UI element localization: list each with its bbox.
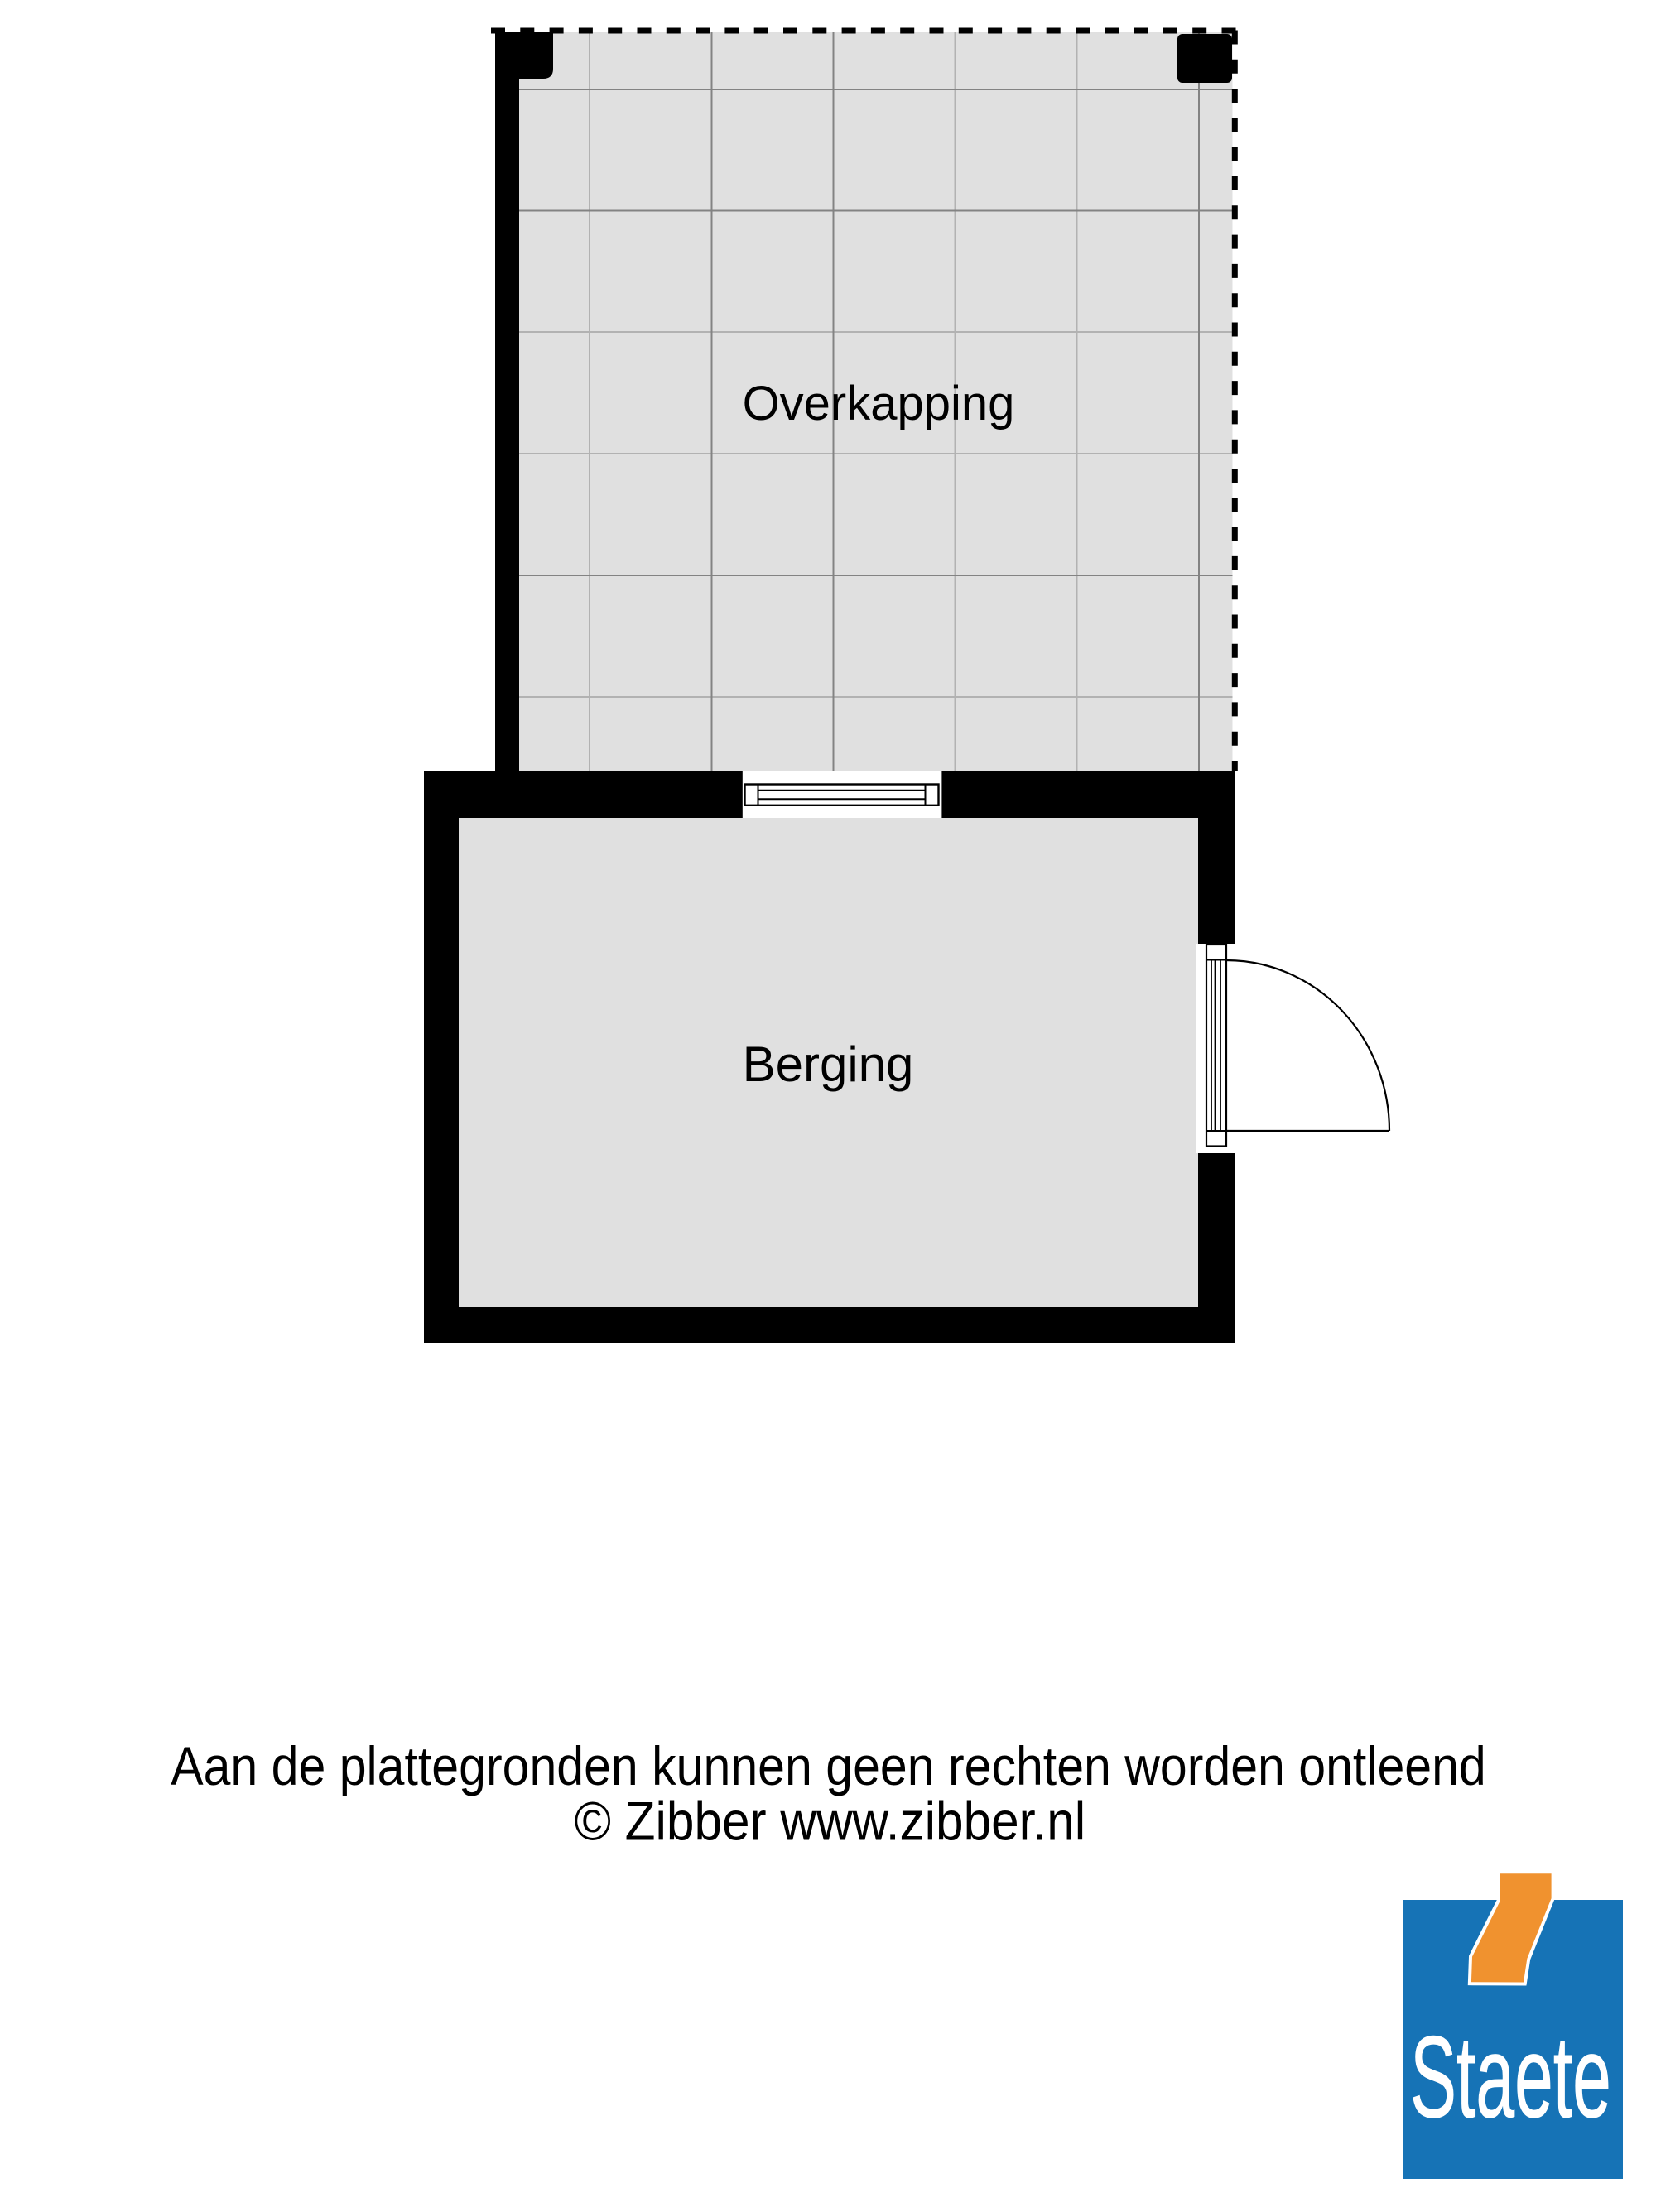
svg-text:Berging: Berging <box>743 1036 914 1092</box>
svg-text:Aan de plattegronden kunnen ge: Aan de plattegronden kunnen geen rechten… <box>171 1736 1486 1797</box>
svg-text:Overkapping: Overkapping <box>743 377 1015 430</box>
svg-text:Staete: Staete <box>1410 2012 1611 2142</box>
svg-text:© Zibber www.zibber.nl: © Zibber www.zibber.nl <box>574 1791 1086 1852</box>
